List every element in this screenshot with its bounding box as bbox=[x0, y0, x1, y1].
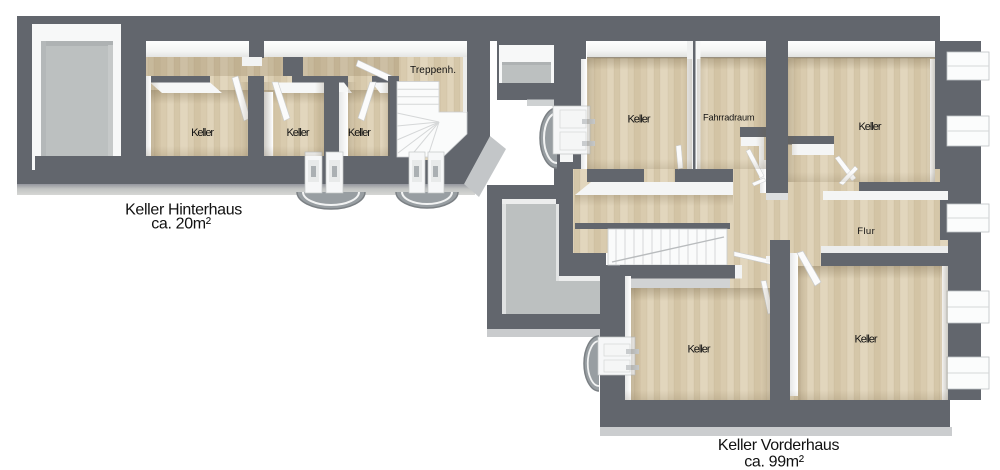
svg-text:Keller: Keller bbox=[191, 127, 214, 139]
svg-text:Keller: Keller bbox=[855, 334, 878, 346]
svg-text:Keller: Keller bbox=[859, 121, 882, 133]
svg-text:ca. 99m²: ca. 99m² bbox=[744, 454, 804, 470]
svg-text:ca. 20m²: ca. 20m² bbox=[151, 215, 211, 232]
svg-text:Keller: Keller bbox=[688, 344, 711, 356]
svg-text:Flur: Flur bbox=[857, 226, 875, 237]
svg-text:Fahrradraum: Fahrradraum bbox=[703, 112, 755, 122]
svg-text:Keller: Keller bbox=[628, 114, 651, 126]
svg-text:Keller Vorderhaus: Keller Vorderhaus bbox=[718, 437, 840, 454]
svg-text:Keller: Keller bbox=[287, 127, 310, 139]
svg-text:Keller: Keller bbox=[348, 127, 371, 139]
svg-text:Treppenh.: Treppenh. bbox=[410, 65, 456, 76]
